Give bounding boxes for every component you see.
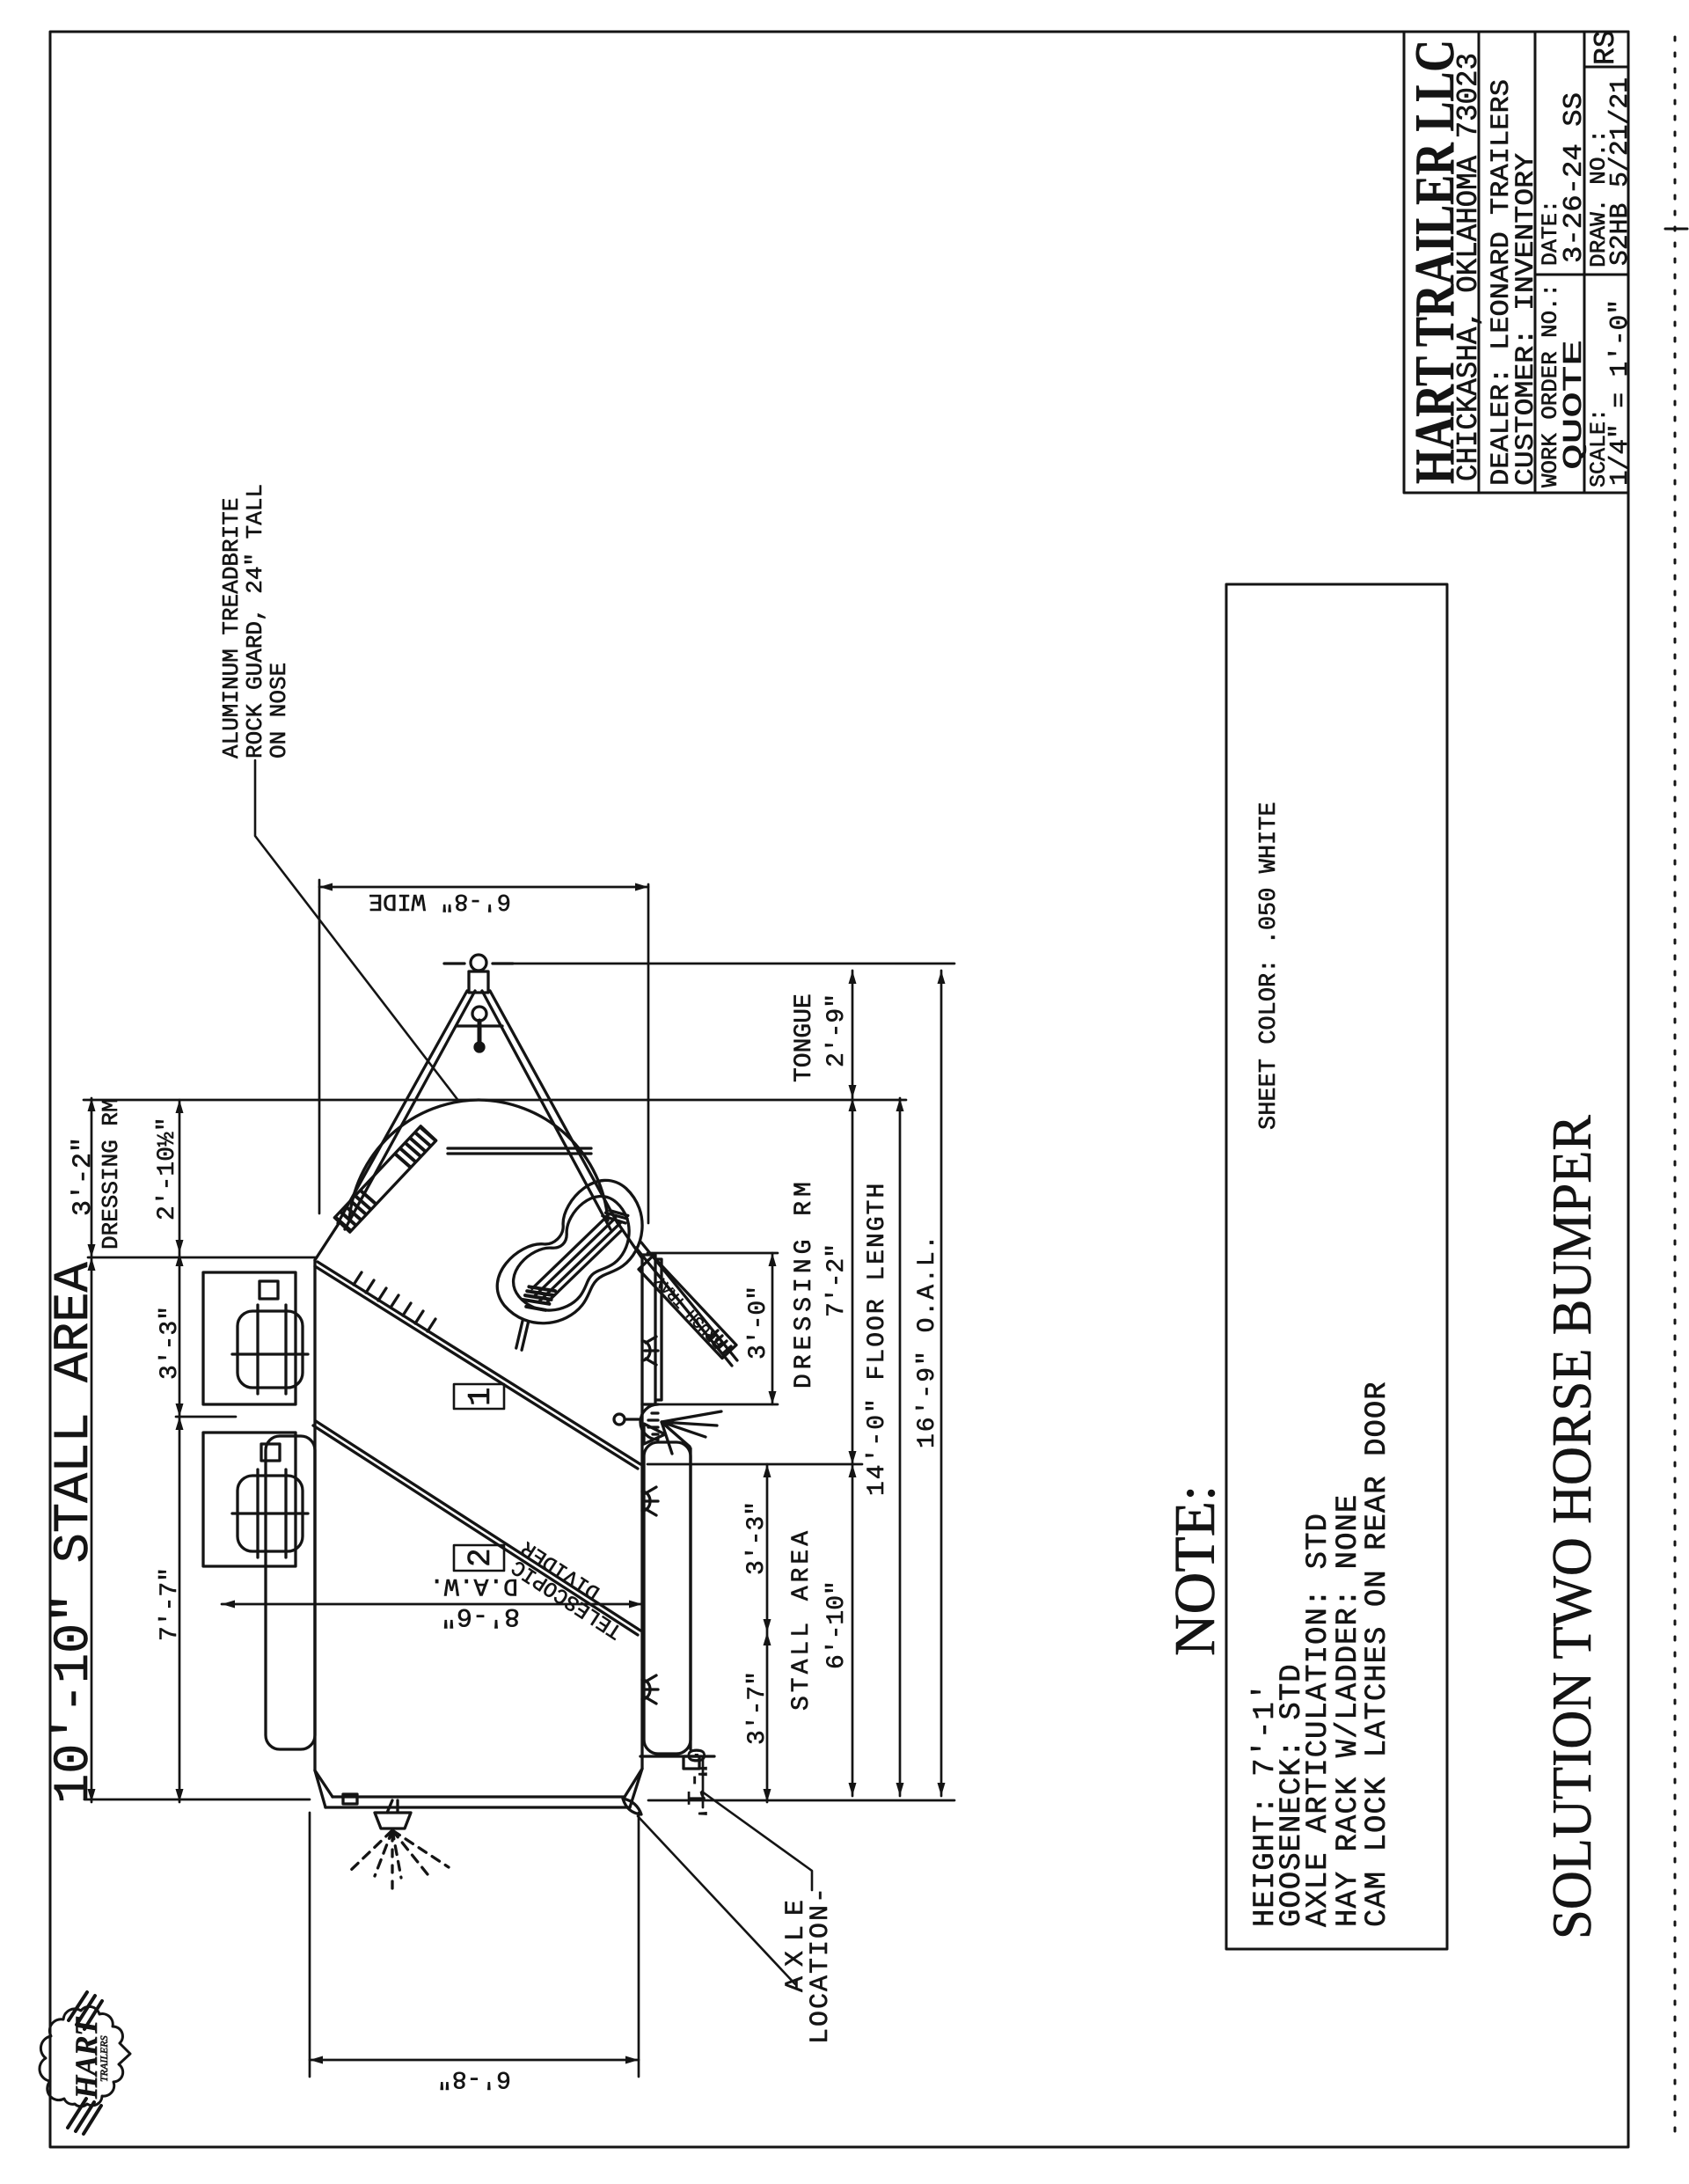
svg-text:8'-6": 8'-6" (441, 1601, 520, 1631)
svg-text:3-26-24 SS: 3-26-24 SS (1559, 92, 1590, 263)
svg-text:QUOTE: QUOTE (1559, 340, 1590, 470)
svg-text:DRESSING RM: DRESSING RM (98, 1098, 124, 1250)
svg-text:2'-10½": 2'-10½" (154, 1117, 181, 1220)
svg-text:CHICKASHA, OKLAHOMA 73023: CHICKASHA, OKLAHOMA 73023 (1452, 53, 1485, 481)
svg-text:SOLUTION TWO HORSE BUMPER: SOLUTION TWO HORSE BUMPER (1540, 1115, 1603, 1939)
svg-text:7'-7": 7'-7" (157, 1567, 184, 1641)
svg-text:16'-9" O.A.L.: 16'-9" O.A.L. (914, 1234, 941, 1448)
svg-text:-: - (679, 1772, 709, 1788)
svg-text:3'-2": 3'-2" (69, 1137, 99, 1216)
svg-text:6'-8" WIDE: 6'-8" WIDE (369, 887, 511, 913)
svg-text:7'-2": 7'-2" (823, 1243, 851, 1317)
svg-text:LOCATION-: LOCATION- (806, 1886, 836, 2044)
svg-text:2: 2 (463, 1548, 499, 1567)
svg-text:D.A.W.: D.A.W. (429, 1572, 518, 1599)
svg-text:DRESSING RM: DRESSING RM (791, 1177, 818, 1389)
svg-text:STALL AREA: STALL AREA (788, 1528, 815, 1711)
svg-text:NOTE:: NOTE: (1163, 1485, 1227, 1656)
svg-text:ALUMINUM TREADBRITE: ALUMINUM TREADBRITE (218, 498, 245, 759)
svg-text:1: 1 (463, 1387, 499, 1406)
svg-text:10'-10" STALL AREA: 10'-10" STALL AREA (47, 1262, 103, 1804)
svg-text:2'-9": 2'-9" (823, 993, 851, 1067)
svg-text:6'-10": 6'-10" (823, 1580, 851, 1669)
svg-text:ROCK GUARD, 24" TALL: ROCK GUARD, 24" TALL (242, 484, 268, 759)
svg-text:3'-7": 3'-7" (744, 1671, 771, 1745)
svg-text:BRUSH TRAY: BRUSH TRAY (652, 1272, 728, 1352)
svg-text:TRAILERS: TRAILERS (98, 2035, 110, 2082)
svg-text:TONGUE: TONGUE (791, 993, 818, 1082)
svg-text:CUSTOMER: INVENTORY: CUSTOMER: INVENTORY (1511, 153, 1541, 486)
svg-text:1/4" = 1'-0": 1/4" = 1'-0" (1605, 299, 1634, 486)
svg-text:RS: RS (1590, 30, 1622, 65)
svg-text:3'-3": 3'-3" (157, 1306, 184, 1380)
svg-text:14'-0" FLOOR LENGTH: 14'-0" FLOOR LENGTH (864, 1182, 891, 1496)
svg-text:6'-8": 6'-8" (437, 2064, 511, 2092)
svg-text:SHEET COLOR: .050 WHITE: SHEET COLOR: .050 WHITE (1256, 802, 1283, 1130)
svg-text:CAM LOCK LATCHES ON REAR DOOR: CAM LOCK LATCHES ON REAR DOOR (1361, 1381, 1394, 1927)
svg-text:S2HB 5/21/21: S2HB 5/21/21 (1605, 77, 1634, 266)
svg-text:3'-0": 3'-0" (745, 1286, 772, 1360)
svg-text:AXLE ARTICULATION: STD: AXLE ARTICULATION: STD (1302, 1513, 1335, 1927)
svg-text:ON NOSE: ON NOSE (266, 663, 292, 759)
svg-text:3'-3": 3'-3" (743, 1501, 771, 1575)
